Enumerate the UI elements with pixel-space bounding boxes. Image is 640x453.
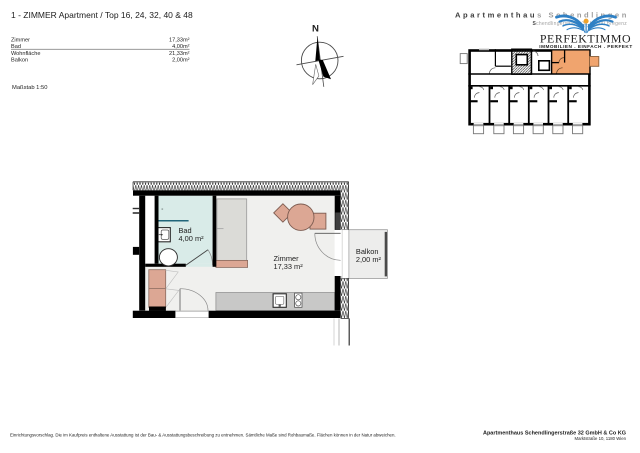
svg-text:Balkon: Balkon xyxy=(11,58,28,64)
svg-text:IMMOBILIEN . EINFACH . PERFEKT: IMMOBILIEN . EINFACH . PERFEKT xyxy=(539,44,632,49)
svg-text:Marktstraße 10, 1180 Wien: Marktstraße 10, 1180 Wien xyxy=(574,436,626,441)
svg-text:1 - ZIMMER Apartment / Top 16,: 1 - ZIMMER Apartment / Top 16, 24, 32, 4… xyxy=(11,10,193,20)
svg-text:N: N xyxy=(312,24,319,35)
svg-text:21,33m²: 21,33m² xyxy=(169,51,190,57)
svg-text:4,00 m²: 4,00 m² xyxy=(179,234,205,243)
svg-text:Wohnfläche: Wohnfläche xyxy=(11,51,40,57)
svg-text:17,33 m²: 17,33 m² xyxy=(274,262,304,271)
svg-text:2,00m²: 2,00m² xyxy=(172,58,190,64)
svg-text:Zimmer: Zimmer xyxy=(11,37,30,43)
svg-text:17,33m²: 17,33m² xyxy=(169,37,190,43)
svg-text:Einrichtungsvorschlag. Die im: Einrichtungsvorschlag. Die im Kaufpreis … xyxy=(10,433,396,438)
svg-text:2,00 m²: 2,00 m² xyxy=(356,255,382,264)
svg-text:Maßstab 1:50: Maßstab 1:50 xyxy=(12,85,47,91)
